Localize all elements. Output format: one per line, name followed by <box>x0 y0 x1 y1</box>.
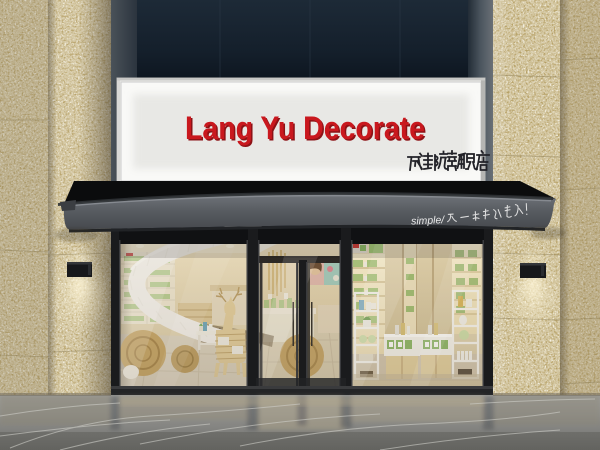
svg-text:Lang Yu Decorate: Lang Yu Decorate <box>185 110 425 146</box>
svg-text:simple/: simple/ <box>411 215 446 228</box>
